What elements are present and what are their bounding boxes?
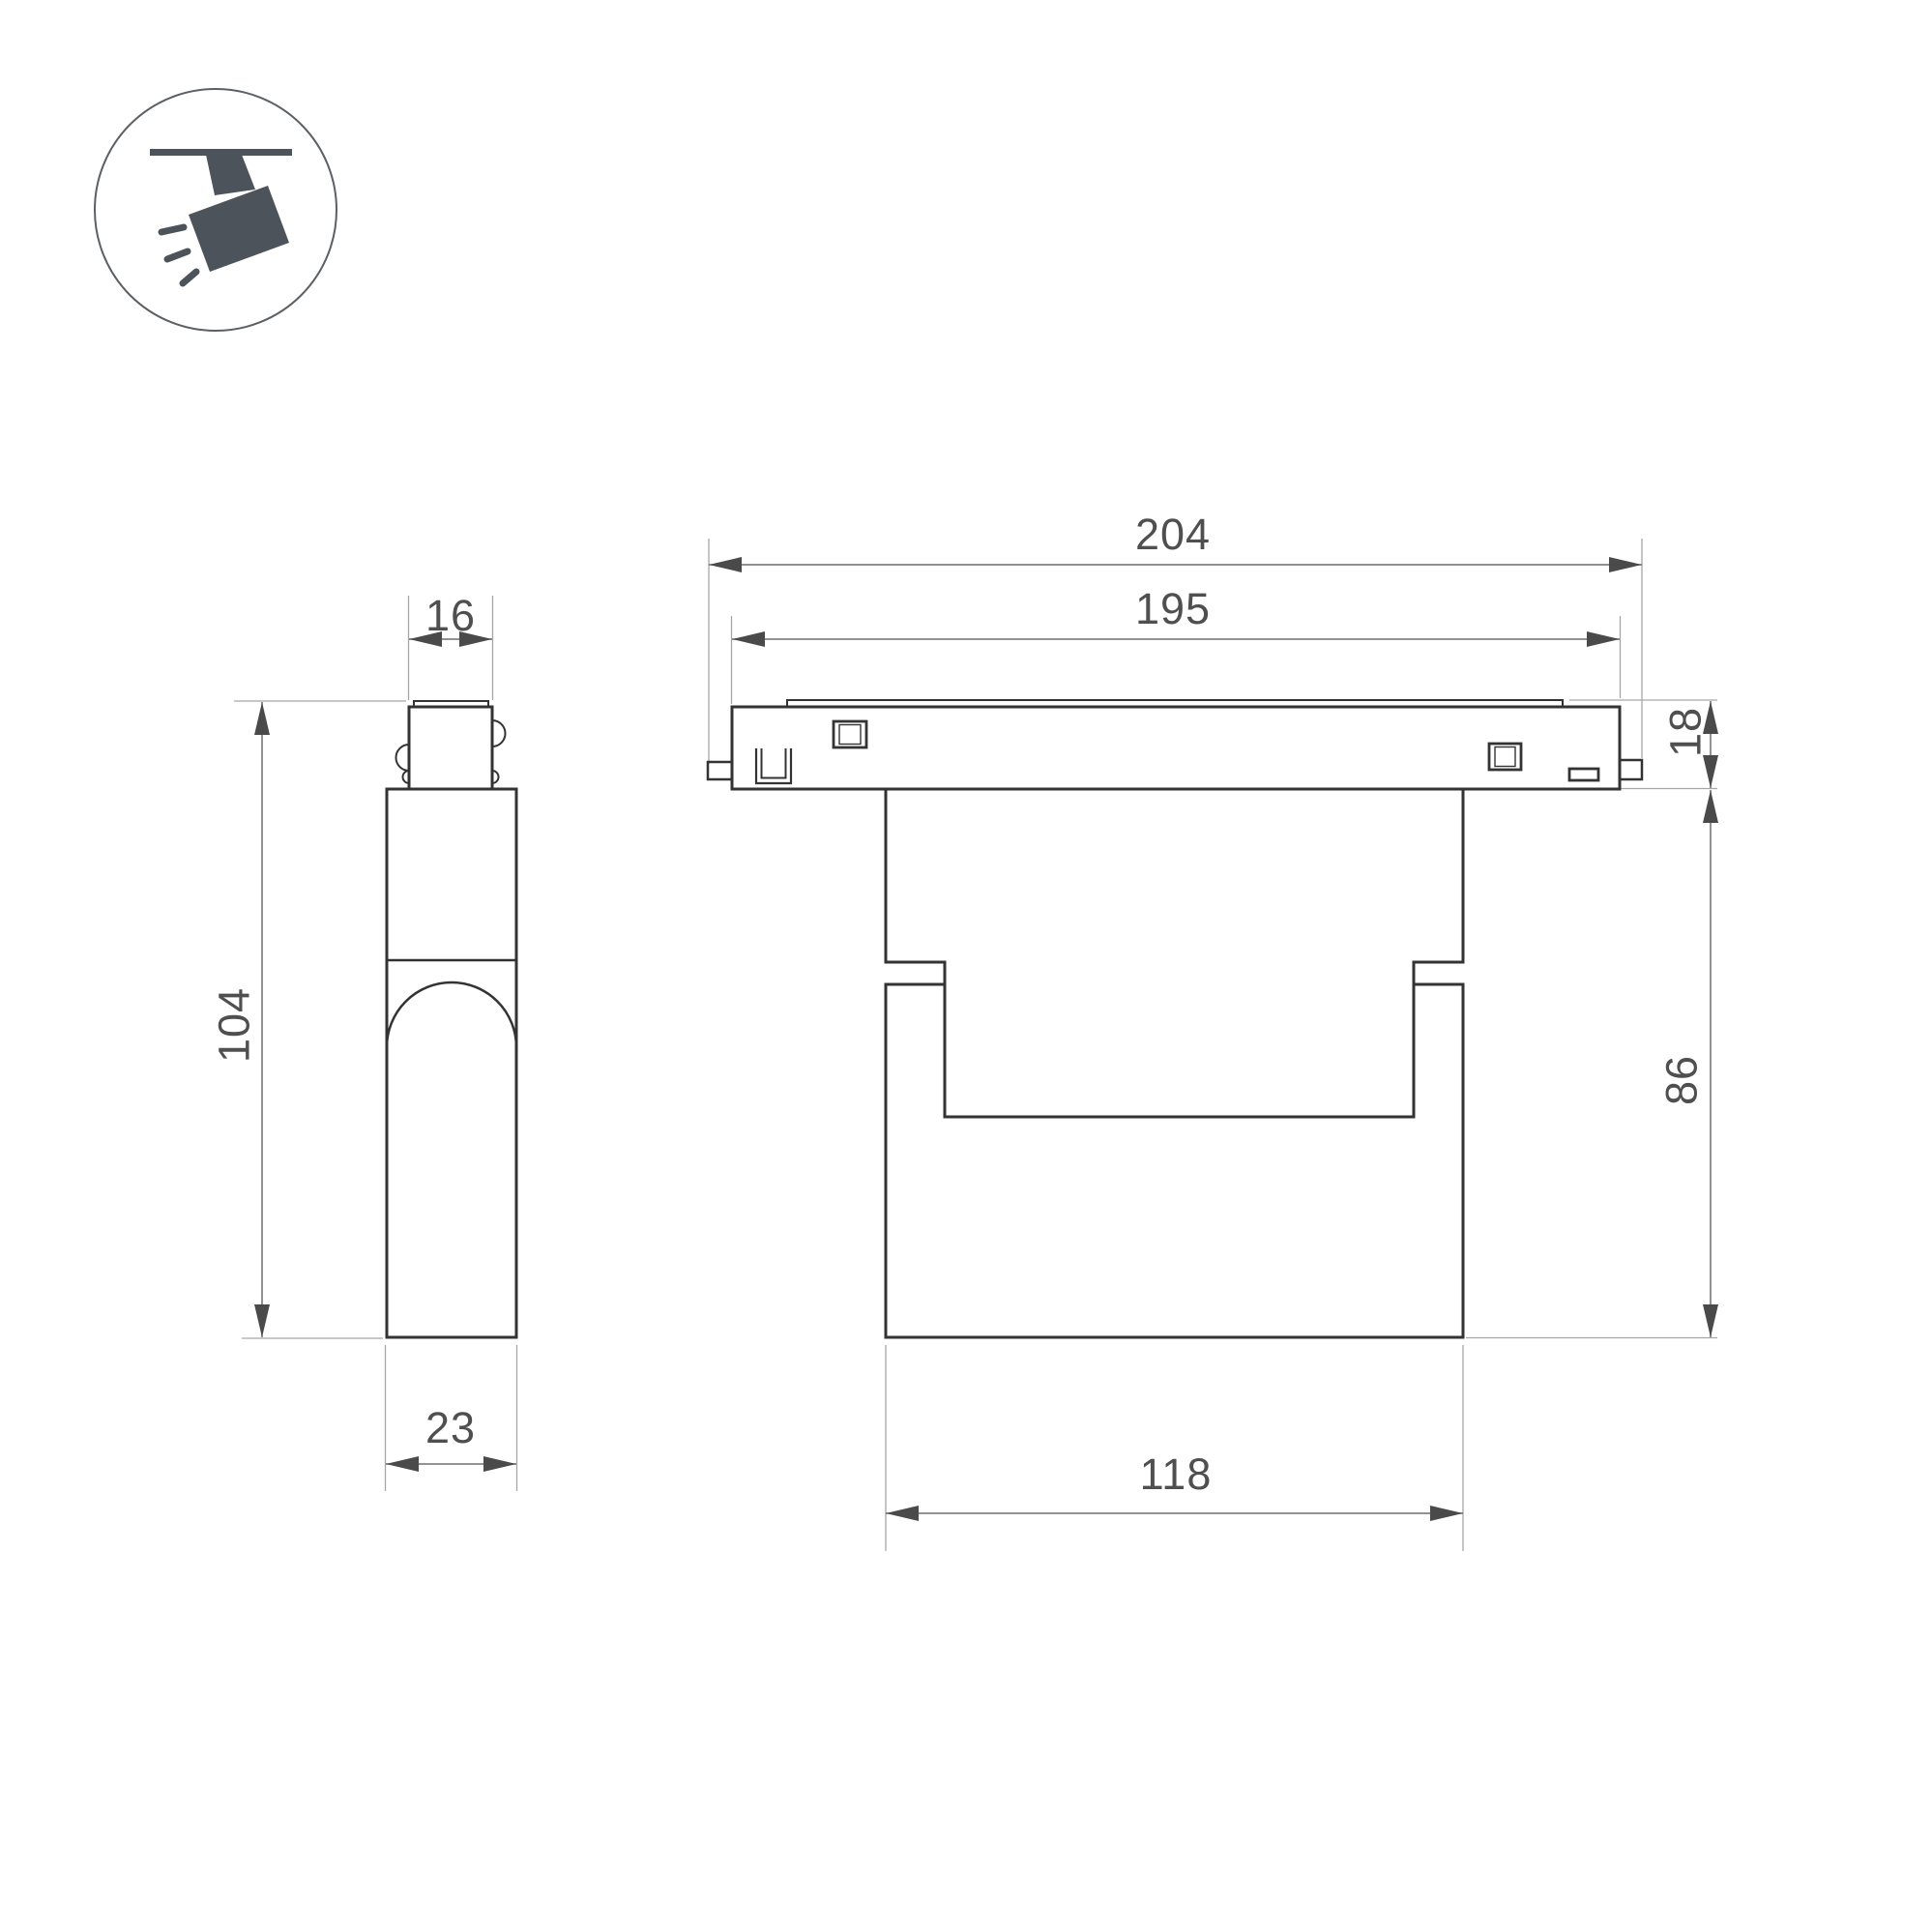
clip-arc xyxy=(492,720,506,746)
icon-mount-stem xyxy=(206,155,255,195)
dim-label-body-height: 86 xyxy=(1657,1055,1707,1105)
icon-lamp-head xyxy=(189,186,289,272)
front-view xyxy=(708,700,1642,1337)
front-body-lower-outline xyxy=(886,984,1463,1337)
arrowhead xyxy=(386,1456,419,1472)
arrowhead xyxy=(1430,1506,1463,1521)
u-clip-inner xyxy=(762,749,786,778)
right-slot-detail xyxy=(1569,769,1598,780)
icon-light-rays xyxy=(161,227,196,283)
dimension-drawing: 16 104 23 204 195 18 86 118 xyxy=(0,0,1932,1932)
dim-label-track-height: 18 xyxy=(1661,707,1711,757)
arrowhead xyxy=(483,1456,516,1472)
front-body-upper-outline xyxy=(886,789,1463,1117)
arrowhead xyxy=(254,1304,270,1337)
dim-label-inner-width: 195 xyxy=(1135,584,1211,633)
arrowhead xyxy=(709,557,742,572)
side-hinge-arch xyxy=(387,982,516,1047)
dim-label-height: 104 xyxy=(210,987,259,1063)
arrowhead xyxy=(1587,631,1620,647)
front-left-contact-tab xyxy=(708,762,732,779)
arrowhead xyxy=(1703,790,1718,823)
dim-label-top-width: 16 xyxy=(425,591,476,640)
clip-arc xyxy=(396,745,410,771)
side-view xyxy=(387,701,516,1337)
left-window-inner xyxy=(839,725,861,745)
icon-ceiling-track xyxy=(150,149,292,156)
side-spring-clips xyxy=(396,720,506,783)
arrowhead xyxy=(1609,557,1642,572)
track-spotlight-icon xyxy=(95,89,337,331)
dim-label-bottom-width-front: 118 xyxy=(1140,1449,1213,1499)
front-track-details xyxy=(756,721,1598,783)
front-right-contact-tab xyxy=(1620,760,1642,779)
arrowhead xyxy=(254,702,270,735)
right-window-inner xyxy=(1495,747,1515,767)
arrowhead xyxy=(732,631,765,647)
icon-fixture xyxy=(150,149,292,272)
dimension-labels: 16 104 23 204 195 18 86 118 xyxy=(210,510,1711,1499)
side-body xyxy=(387,789,516,1337)
arrowhead xyxy=(1703,755,1718,788)
dim-label-overall-width: 204 xyxy=(1135,510,1211,559)
arrowhead xyxy=(1703,1304,1718,1337)
dimension-drawing-page: 16 104 23 204 195 18 86 118 xyxy=(0,0,1932,1932)
dim-label-bottom-width-side: 23 xyxy=(425,1403,476,1452)
extension-lines xyxy=(234,539,1717,1551)
arrowhead xyxy=(886,1506,919,1521)
side-track-adapter xyxy=(409,707,492,789)
